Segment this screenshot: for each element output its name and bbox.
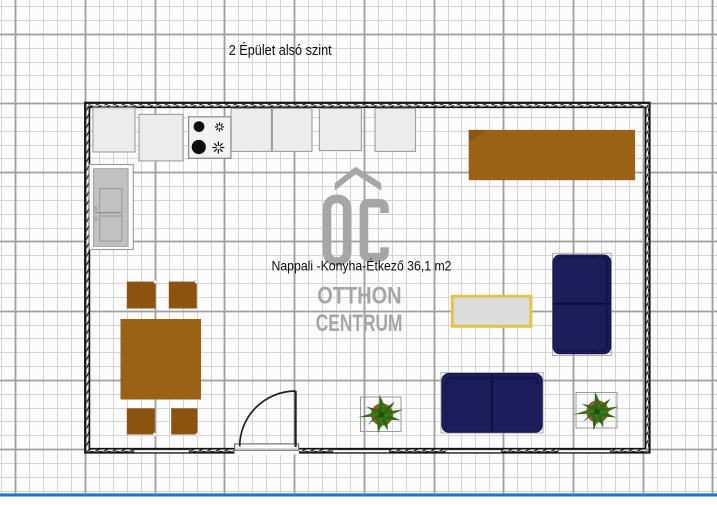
svg-text:Nappali -Konyha-Étkező 36,1 m: Nappali -Konyha-Étkező 36,1 m2 [272, 259, 452, 274]
svg-text:2 Épület alsó szint: 2 Épület alsó szint [229, 42, 332, 59]
svg-text:CENTRUM: CENTRUM [316, 310, 403, 337]
svg-text:OTTHON: OTTHON [317, 282, 401, 309]
